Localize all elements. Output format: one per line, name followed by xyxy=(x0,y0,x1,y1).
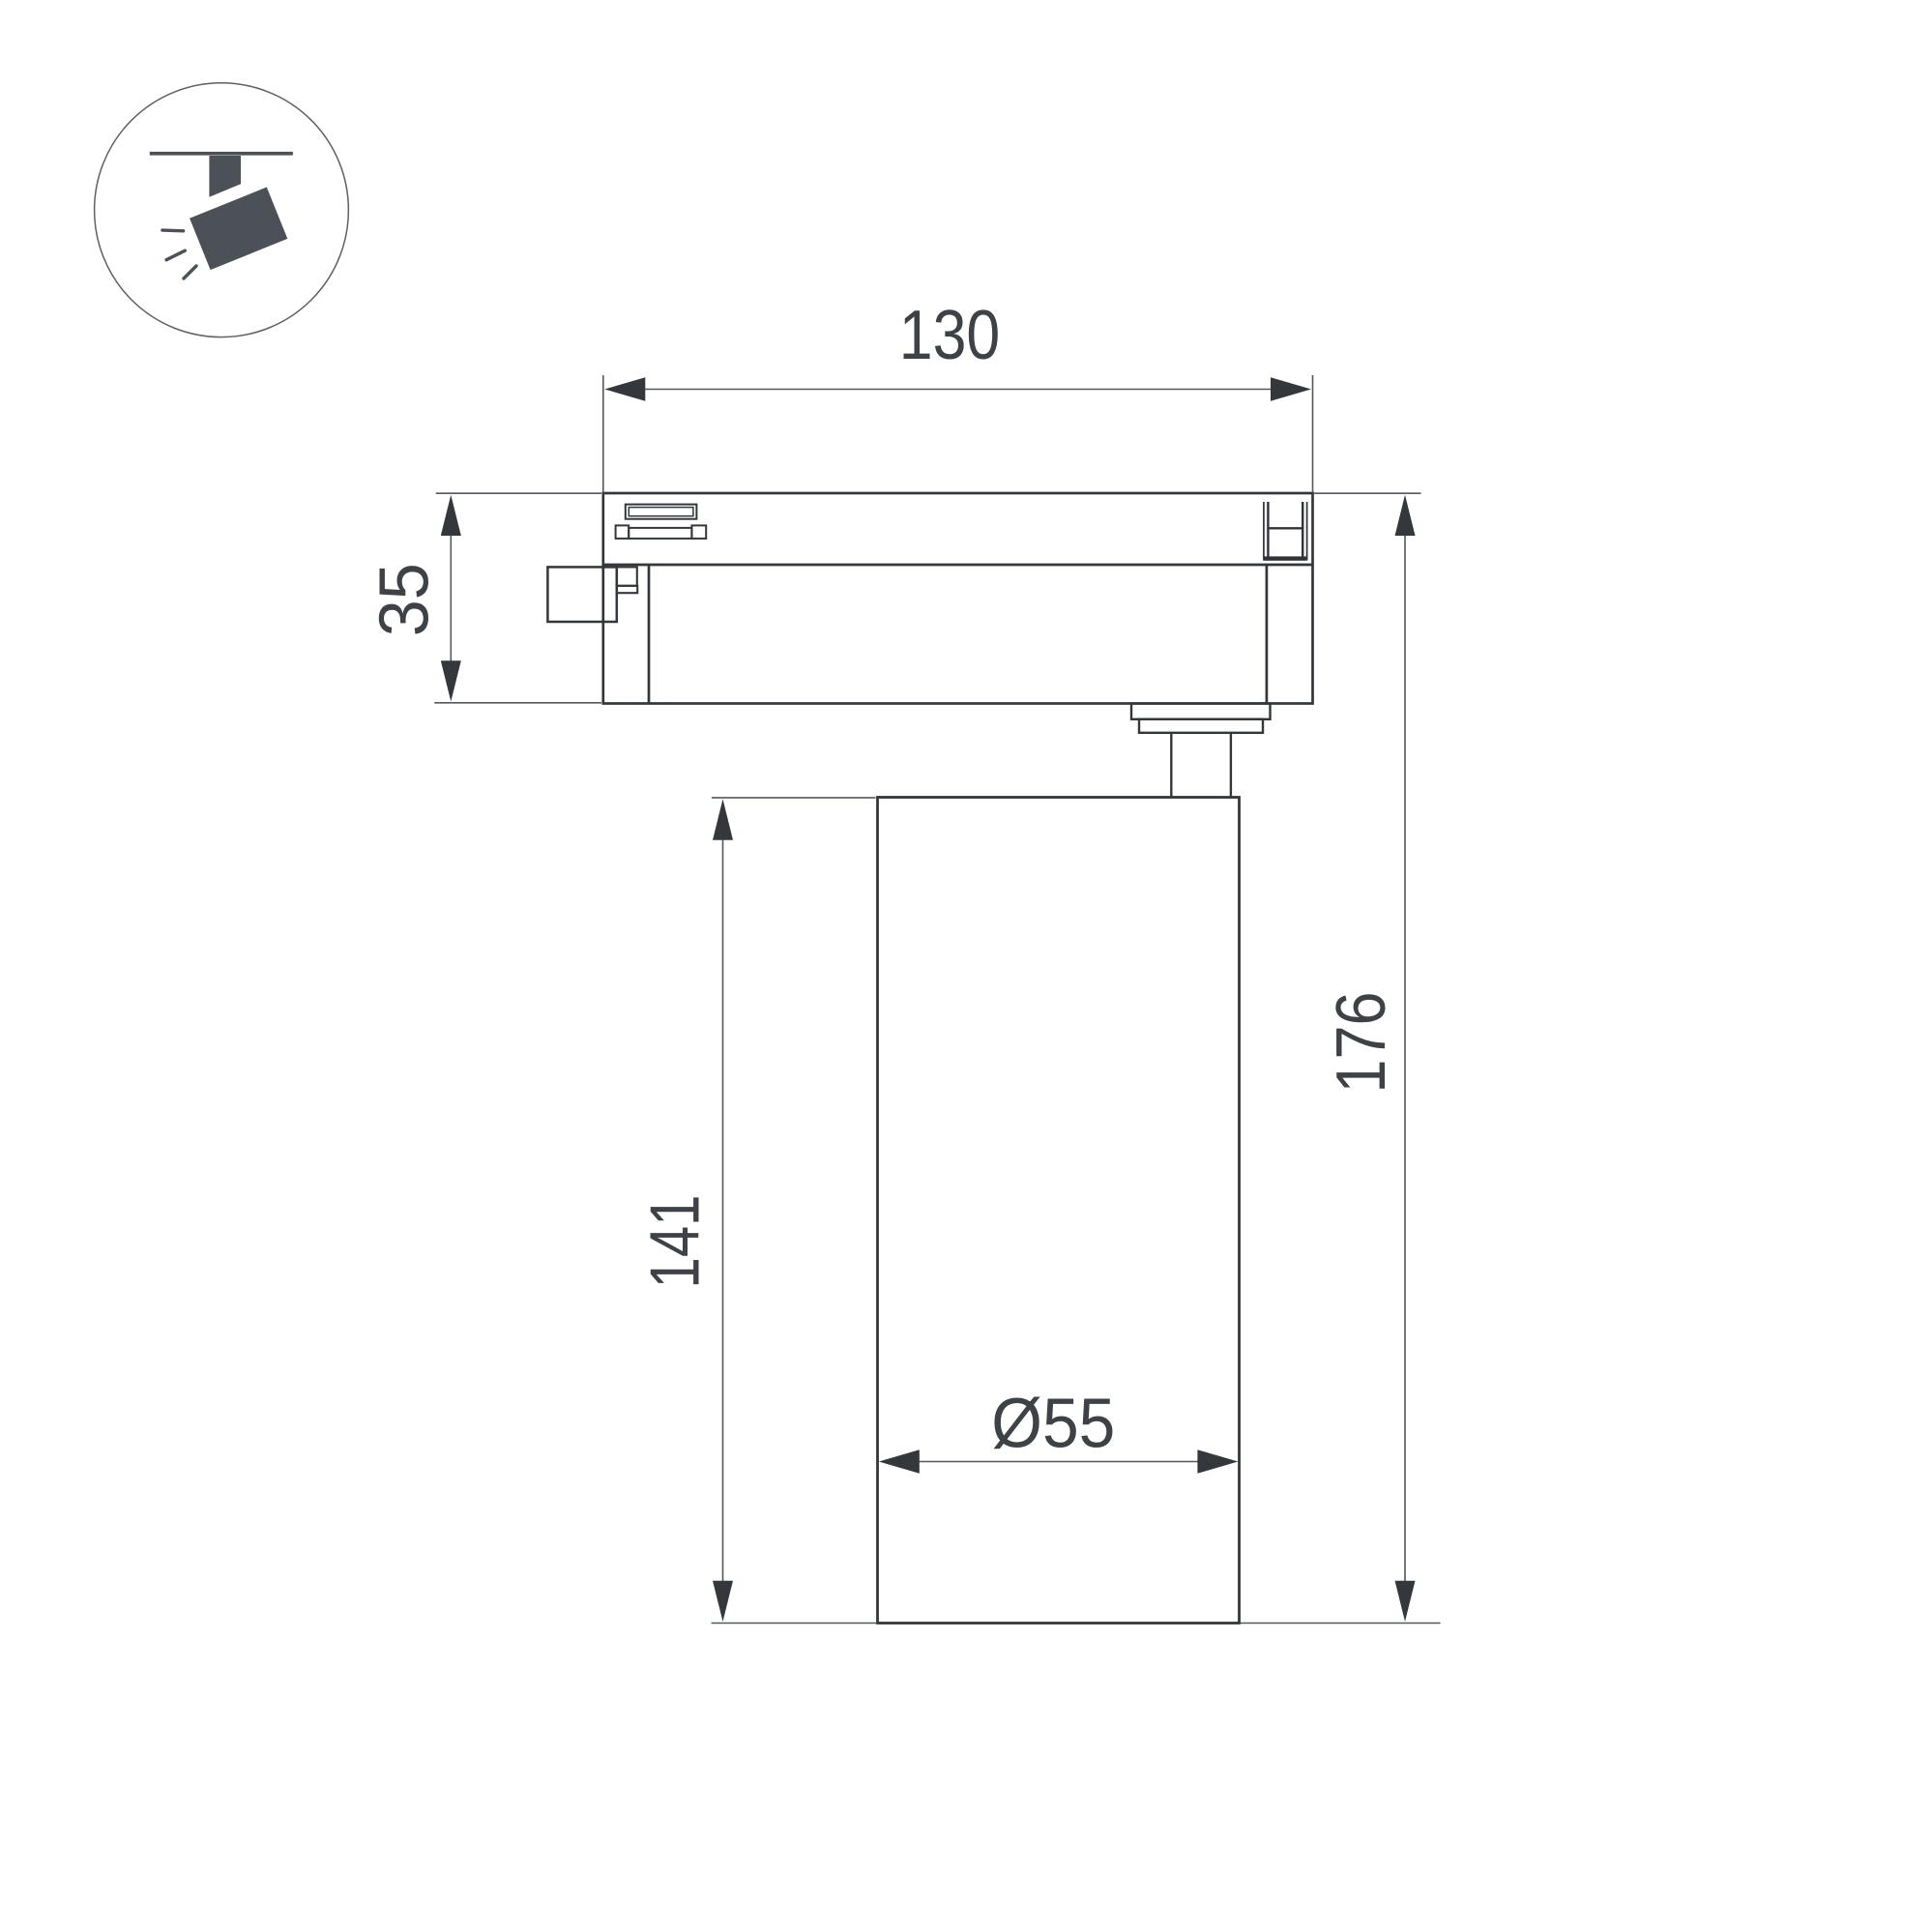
svg-text:Ø55: Ø55 xyxy=(991,1386,1115,1463)
svg-text:176: 176 xyxy=(1323,992,1400,1094)
svg-text:130: 130 xyxy=(899,297,1001,374)
svg-text:141: 141 xyxy=(637,1195,715,1289)
svg-text:35: 35 xyxy=(366,563,444,636)
